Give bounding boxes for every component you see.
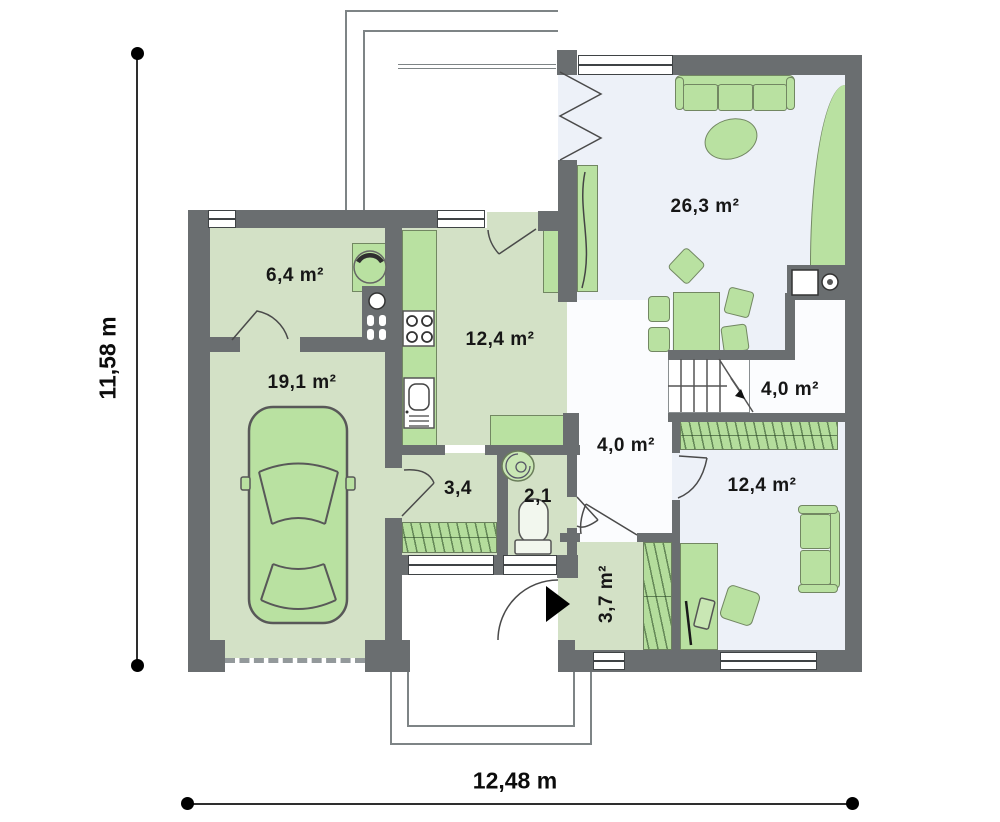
terrace-step-line — [398, 64, 556, 69]
room-label-utility: 6,4 m² — [266, 265, 324, 287]
door-opening — [672, 453, 680, 500]
dimension-dot — [131, 659, 144, 672]
window-icon — [503, 555, 557, 575]
wall-segment — [365, 640, 410, 672]
sofa-cushion — [800, 514, 831, 549]
wall-segment — [672, 500, 680, 650]
wall-segment — [494, 555, 503, 575]
kitchen-counter — [490, 415, 565, 447]
wall-segment — [558, 160, 577, 302]
wall-segment — [845, 55, 862, 672]
door-opening — [558, 578, 575, 640]
wall-segment — [785, 293, 795, 353]
room-label-vestibule: 3,7 m² — [596, 565, 618, 623]
wall-segment — [188, 337, 240, 352]
office-sofa-icon — [798, 505, 840, 593]
room-garage-floor — [210, 352, 385, 658]
terrace-outline — [363, 30, 558, 210]
window-icon — [720, 652, 817, 670]
chair-icon — [648, 296, 670, 322]
dimension-label-horizontal: 12,48 m — [473, 768, 557, 795]
wall-segment — [557, 555, 578, 578]
window-icon — [408, 555, 494, 575]
wall-segment — [188, 640, 225, 672]
wardrobe-icon — [402, 522, 497, 553]
wardrobe-icon — [643, 542, 672, 650]
window-icon — [578, 55, 673, 75]
wall-segment — [560, 533, 580, 542]
wall-segment — [400, 210, 437, 228]
desk-icon — [680, 543, 718, 650]
dining-table-icon — [673, 292, 720, 353]
door-opening — [487, 212, 538, 228]
wall-segment — [557, 50, 577, 75]
wall-segment — [668, 413, 845, 422]
dimension-line-vertical — [136, 54, 138, 666]
sofa-cushion — [753, 84, 787, 111]
room-label-hall: 4,0 m² — [597, 435, 655, 457]
garage-door-icon — [225, 658, 365, 663]
sofa-arm — [798, 505, 838, 514]
room-label-living: 26,3 m² — [671, 196, 740, 218]
wall-segment — [668, 350, 795, 360]
dimension-dot — [131, 47, 144, 60]
dimension-line-horizontal — [187, 803, 852, 805]
wall-segment — [672, 422, 680, 453]
fireplace-icon — [787, 265, 845, 300]
wall-segment — [188, 210, 210, 672]
sofa-arm — [786, 77, 795, 110]
door-opening — [385, 468, 402, 518]
room-label-corridor: 3,4 — [444, 478, 472, 500]
door-opening — [567, 497, 577, 528]
room-label-garage: 19,1 m² — [268, 372, 337, 394]
wall-segment — [402, 445, 445, 455]
sofa-cushion — [800, 550, 831, 585]
room-label-kitchen: 12,4 m² — [466, 329, 535, 351]
wall-segment — [385, 555, 408, 575]
boiler-platform — [352, 243, 388, 292]
window-icon — [437, 210, 485, 228]
kitchen-counter — [402, 230, 437, 450]
window-icon — [208, 210, 236, 228]
wardrobe-icon — [680, 421, 838, 450]
sofa-cushion — [683, 84, 718, 111]
door-opening — [240, 337, 300, 352]
sofa-icon — [675, 75, 795, 111]
door-opening — [580, 533, 637, 542]
room-label-wc: 2,1 — [524, 486, 552, 508]
sofa-cushion — [718, 84, 753, 111]
wall-segment — [673, 55, 862, 75]
wall-segment — [385, 210, 402, 468]
sofa-back — [830, 509, 840, 589]
room-label-hall-stairs: 4,0 m² — [761, 379, 819, 401]
chair-icon — [648, 327, 670, 352]
window-icon — [593, 652, 625, 670]
sofa-arm — [798, 584, 838, 593]
dimension-label-vertical: 11,58 m — [95, 316, 122, 399]
floor-plan: 6,4 m² 19,1 m² 12,4 m² 26,3 m² 4,0 m² 4,… — [0, 0, 1000, 822]
dimension-dot — [846, 797, 859, 810]
wall-segment — [563, 413, 579, 453]
door-opening — [558, 75, 577, 160]
entrance-door-icon — [498, 580, 558, 640]
dimension-dot — [181, 797, 194, 810]
stairs — [668, 358, 750, 413]
cabinet-icon — [577, 165, 598, 292]
room-label-office: 12,4 m² — [728, 475, 797, 497]
porch-outline — [407, 672, 575, 727]
